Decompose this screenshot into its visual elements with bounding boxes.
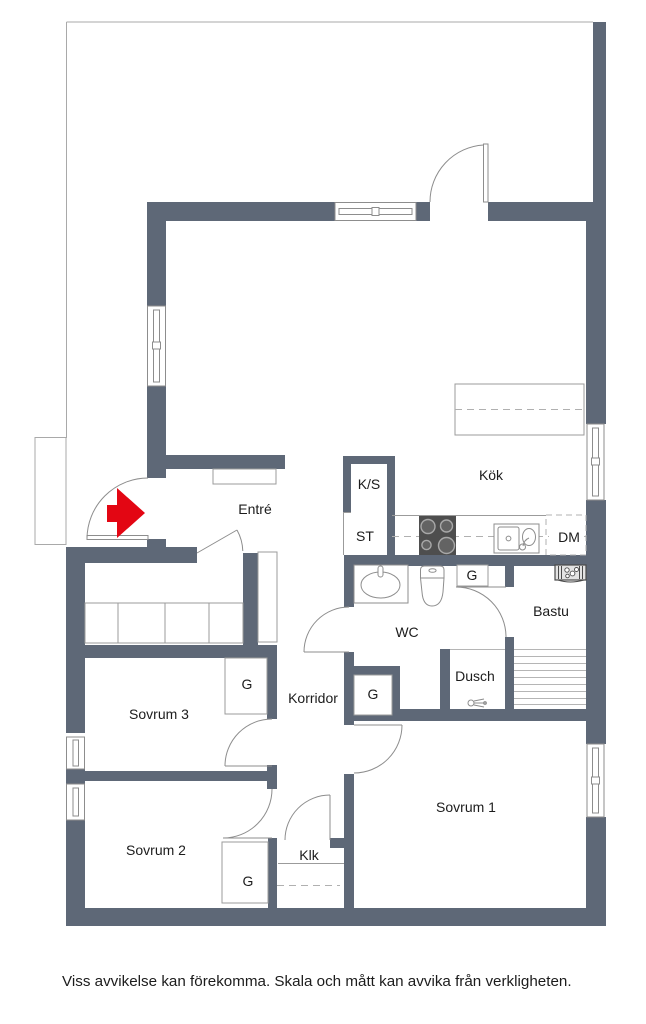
svg-text:Viss avvikelse kan förekomma.: Viss avvikelse kan förekomma. Skala och …: [62, 973, 572, 990]
svg-text:G: G: [368, 686, 379, 702]
svg-text:ST: ST: [356, 528, 374, 544]
svg-text:DM: DM: [558, 529, 580, 545]
svg-text:Sovrum 2: Sovrum 2: [126, 842, 186, 858]
svg-text:WC: WC: [395, 624, 418, 640]
svg-text:Klk: Klk: [299, 847, 319, 863]
svg-text:G: G: [243, 873, 254, 889]
svg-text:G: G: [242, 676, 253, 692]
svg-text:Dusch: Dusch: [455, 668, 495, 684]
svg-text:Kök: Kök: [479, 467, 504, 483]
svg-text:Sovrum 3: Sovrum 3: [129, 706, 189, 722]
svg-text:G: G: [467, 567, 478, 583]
svg-text:Entré: Entré: [238, 501, 272, 517]
svg-text:Bastu: Bastu: [533, 603, 569, 619]
svg-text:K/S: K/S: [358, 476, 381, 492]
svg-text:Sovrum 1: Sovrum 1: [436, 799, 496, 815]
svg-text:Korridor: Korridor: [288, 690, 338, 706]
